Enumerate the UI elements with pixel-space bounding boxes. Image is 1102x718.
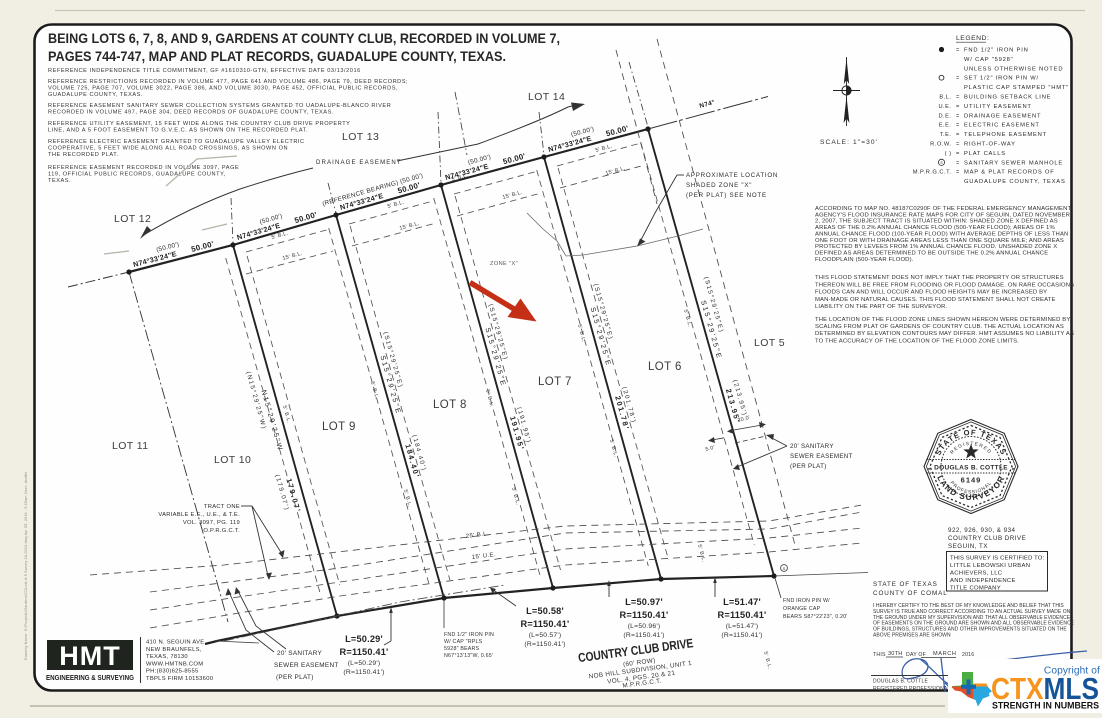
svg-text:(L=51.47'): (L=51.47') [726, 623, 759, 630]
svg-text:R=1150.41': R=1150.41' [620, 610, 669, 620]
svg-text:RECORDED IN VOLUME 497, PAGE 3: RECORDED IN VOLUME 497, PAGE 304, DEED R… [48, 109, 334, 115]
svg-text:R.O.W.: R.O.W. [930, 142, 951, 148]
svg-text:DRAINAGE EASEMENT: DRAINAGE EASEMENT [964, 113, 1041, 119]
svg-text:(PER PLAT): (PER PLAT) [790, 463, 827, 470]
svg-text:R=1150.41': R=1150.41' [340, 647, 389, 657]
svg-text:LOT 9: LOT 9 [322, 421, 356, 433]
svg-text:RIGHT-OF-WAY: RIGHT-OF-WAY [964, 142, 1016, 148]
svg-text:LOT 11: LOT 11 [112, 440, 148, 452]
svg-text:REFERENCE EASEMENT SANITARY SE: REFERENCE EASEMENT SANITARY SEWER COLLEC… [48, 103, 391, 109]
svg-text:ENGINEERING & SURVEYING: ENGINEERING & SURVEYING [46, 673, 134, 682]
svg-text:REFERENCE ELECTRIC EASEMENT GR: REFERENCE ELECTRIC EASEMENT GRANTED TO G… [48, 139, 305, 145]
svg-text:REFERENCE UTILITY EASEMENT, 15: REFERENCE UTILITY EASEMENT, 15 FEET WIDE… [48, 121, 350, 127]
svg-text:5928" BEARS: 5928" BEARS [444, 646, 480, 652]
svg-text:UTILITY EASEMENT: UTILITY EASEMENT [964, 104, 1032, 110]
svg-text:ZONE "X": ZONE "X" [490, 261, 518, 267]
svg-text:AREAS OF THE 0.2% ANNUAL CHANC: AREAS OF THE 0.2% ANNUAL CHANCE FLOOD (5… [815, 225, 1055, 231]
svg-text:922, 926, 930, & 934: 922, 926, 930, & 934 [948, 527, 1016, 534]
svg-text:410 N. SEGUIN AVE.: 410 N. SEGUIN AVE. [146, 640, 206, 646]
svg-text:DAY OF: DAY OF [906, 652, 926, 658]
svg-text:(R=1150.41'): (R=1150.41') [623, 632, 664, 639]
svg-text:MARCH: MARCH [933, 651, 957, 657]
svg-text:PH:(830)625-8555: PH:(830)625-8555 [146, 669, 199, 675]
svg-text:ORANGE CAP: ORANGE CAP [783, 606, 821, 612]
svg-text:O.P.R.G.C.T.: O.P.R.G.C.T. [203, 528, 240, 534]
svg-text:►: ► [1012, 466, 1016, 471]
svg-text:COOPERATIVE, 5 FEET WIDE ALONG: COOPERATIVE, 5 FEET WIDE ALONG ALL ROAD … [48, 145, 288, 151]
svg-text:VOLUME 725, PAGE 707, VOLUME 3: VOLUME 725, PAGE 707, VOLUME 3022, PAGE … [48, 85, 398, 91]
svg-text:TRACT ONE: TRACT ONE [204, 504, 240, 510]
svg-text:R=1150.41': R=1150.41' [718, 610, 767, 620]
svg-text:WWW.HMTNB.COM: WWW.HMTNB.COM [146, 661, 203, 667]
svg-text:LEGEND:: LEGEND: [956, 35, 989, 42]
svg-text:AND INDEPENDENCE: AND INDEPENDENCE [950, 578, 1016, 584]
svg-text:D.E.: D.E. [938, 113, 951, 119]
svg-text:W/ CAP "5928": W/ CAP "5928" [964, 57, 1014, 63]
svg-text:SEGUIN, TX: SEGUIN, TX [948, 543, 988, 550]
svg-text:TITLE COMPANY: TITLE COMPANY [950, 586, 1001, 592]
svg-text:W/ CAP "RPLS: W/ CAP "RPLS [444, 639, 483, 645]
svg-text:Drawing Name: S:\Projects\Gard: Drawing Name: S:\Projects\GardensCC\Lots… [24, 471, 28, 660]
svg-text:SET 1/2" IRON PIN W/: SET 1/2" IRON PIN W/ [964, 76, 1039, 82]
svg-text:HMT: HMT [59, 641, 120, 671]
svg-text:2, 2007, THE SUBJECT TRACT IS: 2, 2007, THE SUBJECT TRACT IS SITUATED W… [815, 219, 1058, 225]
svg-text:ACCORDING TO MAP NO. 48187C029: ACCORDING TO MAP NO. 48187C0290F OF THE … [815, 206, 1071, 212]
svg-text:M.P.R.G.C.T.: M.P.R.G.C.T. [913, 170, 952, 176]
svg-text:LOT 12: LOT 12 [114, 213, 151, 225]
svg-text:GUADALUPE COUNTY, TEXAS: GUADALUPE COUNTY, TEXAS [964, 179, 1066, 185]
svg-text:(PER PLAT): (PER PLAT) [276, 674, 314, 681]
svg-text:NEW BRAUNFELS,: NEW BRAUNFELS, [146, 647, 202, 653]
svg-text:AGENCY'S FLOOD INSURANCE RATE: AGENCY'S FLOOD INSURANCE RATE MAPS FOR C… [815, 212, 1070, 218]
svg-text:UNLESS OTHERWISE NOTED: UNLESS OTHERWISE NOTED [964, 66, 1063, 72]
svg-text:119, OFFICIAL PUBLIC RECORDS,: 119, OFFICIAL PUBLIC RECORDS, GUADALUPE … [48, 171, 226, 177]
svg-text:TELEPHONE EASEMENT: TELEPHONE EASEMENT [964, 132, 1047, 138]
svg-text:REFERENCE INDEPENDENCE TITLE C: REFERENCE INDEPENDENCE TITLE COMMITMENT,… [48, 68, 361, 74]
svg-text:SHADED ZONE "X": SHADED ZONE "X" [686, 182, 752, 189]
svg-text:MAP & PLAT RECORDS OF: MAP & PLAT RECORDS OF [964, 170, 1055, 176]
svg-text:COUNTY OF COMAL: COUNTY OF COMAL [873, 590, 948, 597]
svg-text:U.E.: U.E. [938, 104, 951, 110]
svg-text:2016: 2016 [962, 652, 974, 658]
svg-text:DEFINED AS AREAS DETERMINED TO: DEFINED AS AREAS DETERMINED TO BE OUTSID… [815, 250, 1048, 256]
svg-text:THIS FLOOD STATEMENT DOES NOT: THIS FLOOD STATEMENT DOES NOT IMPLY THAT… [815, 275, 1064, 281]
svg-text:(PER PLAT) SEE NOTE: (PER PLAT) SEE NOTE [686, 192, 767, 199]
svg-text:(R=1150.41'): (R=1150.41') [524, 641, 565, 648]
svg-text:20' SANITARY: 20' SANITARY [277, 650, 323, 657]
svg-text:20' SANITARY: 20' SANITARY [790, 443, 834, 450]
svg-text:6149: 6149 [961, 476, 982, 485]
svg-text:BEING LOTS 6, 7, 8, AND 9, GAR: BEING LOTS 6, 7, 8, AND 9, GARDENS AT CO… [48, 31, 560, 46]
svg-text:GUADALUPE COUNTY, TEXAS.: GUADALUPE COUNTY, TEXAS. [48, 92, 143, 98]
svg-text:MAN-MADE OR NATURAL CAUSES. T: MAN-MADE OR NATURAL CAUSES. THIS FLOOD S… [815, 297, 1056, 303]
svg-text:SEWER EASEMENT: SEWER EASEMENT [274, 662, 339, 669]
svg-text:30TH: 30TH [888, 651, 902, 657]
svg-text:N67°13'13"W, 0.65': N67°13'13"W, 0.65' [444, 653, 493, 659]
svg-text:THE LOCATION OF THE FLOOD ZONE: THE LOCATION OF THE FLOOD ZONE LINES SHO… [815, 317, 1070, 323]
svg-text:R=1150.41': R=1150.41' [521, 619, 570, 629]
svg-text:DOUGLAS B. COTTLE: DOUGLAS B. COTTLE [873, 679, 929, 685]
svg-text:THIS SURVEY IS CERTIFIED TO:: THIS SURVEY IS CERTIFIED TO: [950, 556, 1045, 562]
svg-text:LOT 7: LOT 7 [538, 376, 572, 388]
svg-text:SCALE: 1"=30': SCALE: 1"=30' [820, 139, 878, 146]
svg-text:APPROXIMATE LOCATION: APPROXIMATE LOCATION [686, 172, 778, 179]
svg-text:S: S [783, 566, 786, 571]
svg-text:THE RECORDED PLAT.: THE RECORDED PLAT. [48, 152, 119, 158]
svg-text:T.E.: T.E. [940, 132, 952, 138]
svg-text:L=50.97': L=50.97' [625, 597, 663, 607]
svg-text:(L=50.29'): (L=50.29') [348, 660, 381, 667]
svg-text:STRENGTH IN NUMBERS: STRENGTH IN NUMBERS [992, 701, 1100, 712]
svg-text:THEREON WILL BE FREE FROM FLOO: THEREON WILL BE FREE FROM FLOODING OR FL… [815, 282, 1074, 288]
svg-text:SANITARY SEWER MANHOLE: SANITARY SEWER MANHOLE [964, 160, 1063, 166]
svg-text:REFERENCE RESTRICTIONS RECORDE: REFERENCE RESTRICTIONS RECORDED IN VOLUM… [48, 79, 408, 85]
svg-text:ELECTRIC EASEMENT: ELECTRIC EASEMENT [964, 123, 1040, 129]
svg-text:L=50.58': L=50.58' [526, 606, 564, 616]
svg-text:(L=50.57'): (L=50.57') [529, 632, 562, 639]
svg-text:FND 1/2" IRON PIN: FND 1/2" IRON PIN [964, 48, 1029, 54]
svg-text:LOT 14: LOT 14 [528, 91, 565, 103]
svg-text:L=50.29': L=50.29' [345, 634, 383, 644]
svg-text:(L=50.96'): (L=50.96') [628, 623, 661, 630]
svg-text:TO THE ACCURACY OF THE LOCATIO: TO THE ACCURACY OF THE LOCATION OF THE F… [815, 338, 1019, 344]
svg-text:LOT 13: LOT 13 [342, 131, 379, 143]
svg-text:TEXAS.: TEXAS. [48, 178, 71, 184]
svg-text:DOUGLAS B. COTTLE: DOUGLAS B. COTTLE [934, 465, 1008, 472]
svg-text:◄: ◄ [927, 466, 931, 471]
svg-text:L=51.47': L=51.47' [723, 597, 761, 607]
svg-text:TEXAS, 78130: TEXAS, 78130 [146, 654, 188, 660]
svg-text:ONE FOOT OR WITH DRAINAGE AREA: ONE FOOT OR WITH DRAINAGE AREAS LESS THA… [815, 238, 1064, 244]
svg-text:LOT 5: LOT 5 [754, 337, 785, 349]
svg-text:B.L.: B.L. [939, 95, 951, 101]
svg-text:PROTECTED BY LEVEES FROM 1% AN: PROTECTED BY LEVEES FROM 1% ANNUAL CHANC… [815, 244, 1057, 250]
svg-text:( ): ( ) [945, 151, 952, 157]
svg-text:SCALING FROM PLAT OF GARDENS O: SCALING FROM PLAT OF GARDENS OF COUNTRY … [815, 324, 1064, 330]
svg-text:PLASTIC CAP STAMPED "HMT": PLASTIC CAP STAMPED "HMT" [964, 85, 1069, 91]
svg-text:PAGES 744-747, MAP AND PLAT RE: PAGES 744-747, MAP AND PLAT RECORDS, GUA… [48, 49, 506, 64]
svg-text:SEWER EASEMENT: SEWER EASEMENT [790, 453, 853, 460]
svg-text:(R=1150.41'): (R=1150.41') [343, 669, 384, 676]
svg-text:LINE, AND A 5 FOOT EASEMENT TO: LINE, AND A 5 FOOT EASEMENT TO G.V.E.C. … [48, 127, 308, 133]
svg-text:STATE OF TEXAS: STATE OF TEXAS [873, 581, 938, 588]
svg-text:VOL. 3097, PG. 119: VOL. 3097, PG. 119 [183, 520, 240, 526]
svg-text:LOT 8: LOT 8 [433, 399, 467, 411]
svg-text:BUILDING SETBACK LINE: BUILDING SETBACK LINE [964, 95, 1051, 101]
svg-text:TBPLS FIRM 10153600: TBPLS FIRM 10153600 [146, 676, 213, 682]
svg-text:DETERMINED BY ELEVATION CONTOU: DETERMINED BY ELEVATION CONTOURS MAY DIF… [815, 331, 1074, 337]
svg-text:FND IRON PIN W/: FND IRON PIN W/ [783, 598, 830, 604]
svg-text:FLOODPLAIN (500-YEAR FLOOD).: FLOODPLAIN (500-YEAR FLOOD). [815, 257, 914, 263]
svg-text:BEARS S87°22'23", 0.20': BEARS S87°22'23", 0.20' [783, 614, 848, 620]
svg-text:LOT 10: LOT 10 [214, 454, 251, 466]
svg-text:COUNTRY CLUB DRIVE: COUNTRY CLUB DRIVE [948, 535, 1026, 542]
svg-text:FND 1/2" IRON PIN: FND 1/2" IRON PIN [444, 632, 494, 638]
svg-text:ACHIEVERS, LLC: ACHIEVERS, LLC [950, 571, 1003, 577]
svg-text:REFERENCE EASEMENT RECORDED IN: REFERENCE EASEMENT RECORDED IN VOLUME 30… [48, 165, 239, 171]
svg-text:PLAT CALLS: PLAT CALLS [964, 151, 1006, 157]
svg-text:DRAINAGE EASEMENT: DRAINAGE EASEMENT [316, 159, 402, 166]
svg-text:FLOODS CAN AND WILL OCCUR AND: FLOODS CAN AND WILL OCCUR AND FLOOD HEIG… [815, 290, 1047, 296]
svg-text:(R=1150.41'): (R=1150.41') [721, 632, 762, 639]
svg-text:VARIABLE E.E., U.E., & T.E.: VARIABLE E.E., U.E., & T.E. [158, 512, 240, 518]
svg-text:ABOVE PREMISES ARE SHOWN: ABOVE PREMISES ARE SHOWN [873, 633, 951, 639]
svg-text:LOT 6: LOT 6 [648, 361, 682, 373]
svg-text:LITTLE LEBOWSKI URBAN: LITTLE LEBOWSKI URBAN [950, 563, 1030, 569]
svg-text:ANNUAL CHANCE FLOOD (100-YEAR: ANNUAL CHANCE FLOOD (100-YEAR FLOOD) WIT… [815, 231, 1068, 237]
svg-text:E.E.: E.E. [939, 123, 952, 129]
svg-text:THIS: THIS [873, 652, 886, 658]
svg-text:LIABILITY ON THE PART OF THE S: LIABILITY ON THE PART OF THE SURVEYOR. [815, 304, 947, 310]
